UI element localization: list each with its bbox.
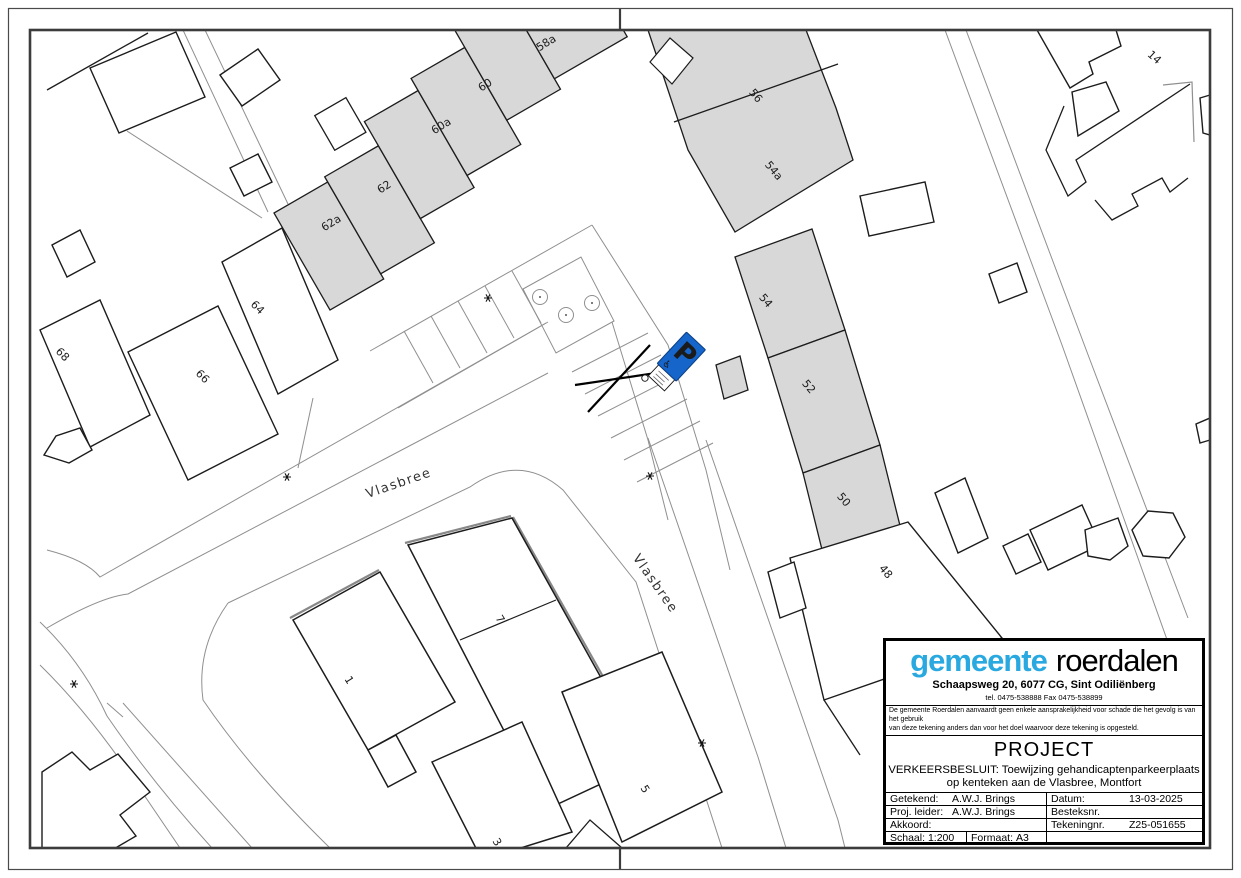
datum-value: 13-03-2025 [1129,793,1183,805]
building-14 [1037,30,1121,88]
title-block: gemeente roerdalen Schaapsweg 20, 6077 C… [883,638,1205,845]
table-row: Akkoord: Tekeningnr. Z25-051655 [886,819,1202,832]
x-marking [575,345,663,412]
schaal-value: 1:200 [928,832,954,844]
formaat-value: A3 [1016,832,1029,844]
getekend-value: A.W.J. Brings [952,793,1015,805]
project-section: PROJECT VERKEERSBESLUIT: Toewijzing geha… [886,736,1202,792]
street-label-vlasbree-1: Vlasbree [364,465,434,502]
formaat-label: Formaat: [971,832,1013,844]
proj-leider-label: Proj. leider: [890,806,952,818]
municipality-address: Schaapsweg 20, 6077 CG, Sint Odiliënberg [886,679,1202,691]
getekend-label: Getekend: [890,793,952,805]
disabled-parking-sign: P ♿ [640,331,705,398]
table-row: Proj. leider: A.W.J. Brings Besteksnr. [886,806,1202,819]
project-description-2: op kenteken aan de Vlasbree, Montfort [886,777,1202,792]
akkoord-label: Akkoord: [890,819,952,831]
besteksnr-label: Besteksnr. [1051,806,1129,818]
datum-label: Datum: [1051,793,1129,805]
disclaimer-line-2: van deze tekening anders dan voor het do… [889,725,1199,734]
project-description-1: VERKEERSBESLUIT: Toewijzing gehandicapte… [886,764,1202,776]
asterisk-icon [283,473,291,480]
municipality-logo: gemeente roerdalen [886,641,1202,676]
bottom-block [290,516,722,860]
disclaimer-line-1: De gemeente Roerdalen aanvaardt geen enk… [889,707,1199,725]
building-annex [315,98,366,151]
proj-leider-value: A.W.J. Brings [952,806,1015,818]
tekeningnr-value: Z25-051655 [1129,819,1186,831]
drawing-page: P ♿ 58a 60 60a 62 62a 56 54a 54 52 50 48… [0,0,1241,878]
logo-word-roerdalen: roerdalen [1056,645,1178,676]
municipality-phone: tel. 0475-538888 Fax 0475-538899 [886,693,1202,705]
disclaimer: De gemeente Roerdalen aanvaardt geen enk… [886,705,1202,736]
schaal-label: Schaal: [890,832,925,844]
house-number-14: 14 [1145,48,1164,67]
table-row: Schaal: 1:200 Formaat: A3 [886,832,1202,844]
building-68 [40,300,150,447]
asterisk-icon [70,680,78,687]
tree-circles [533,290,600,323]
building-1 [293,572,455,750]
project-heading: PROJECT [886,739,1202,762]
building-annex-52 [716,356,748,399]
logo-word-gemeente: gemeente [910,645,1047,676]
building-hexagon [1132,511,1185,558]
tekeningnr-label: Tekeningnr. [1051,819,1129,831]
table-row: Getekend: A.W.J. Brings Datum: 13-03-202… [886,793,1202,806]
empty-cell [1047,832,1202,844]
title-block-table: Getekend: A.W.J. Brings Datum: 13-03-202… [886,792,1202,844]
